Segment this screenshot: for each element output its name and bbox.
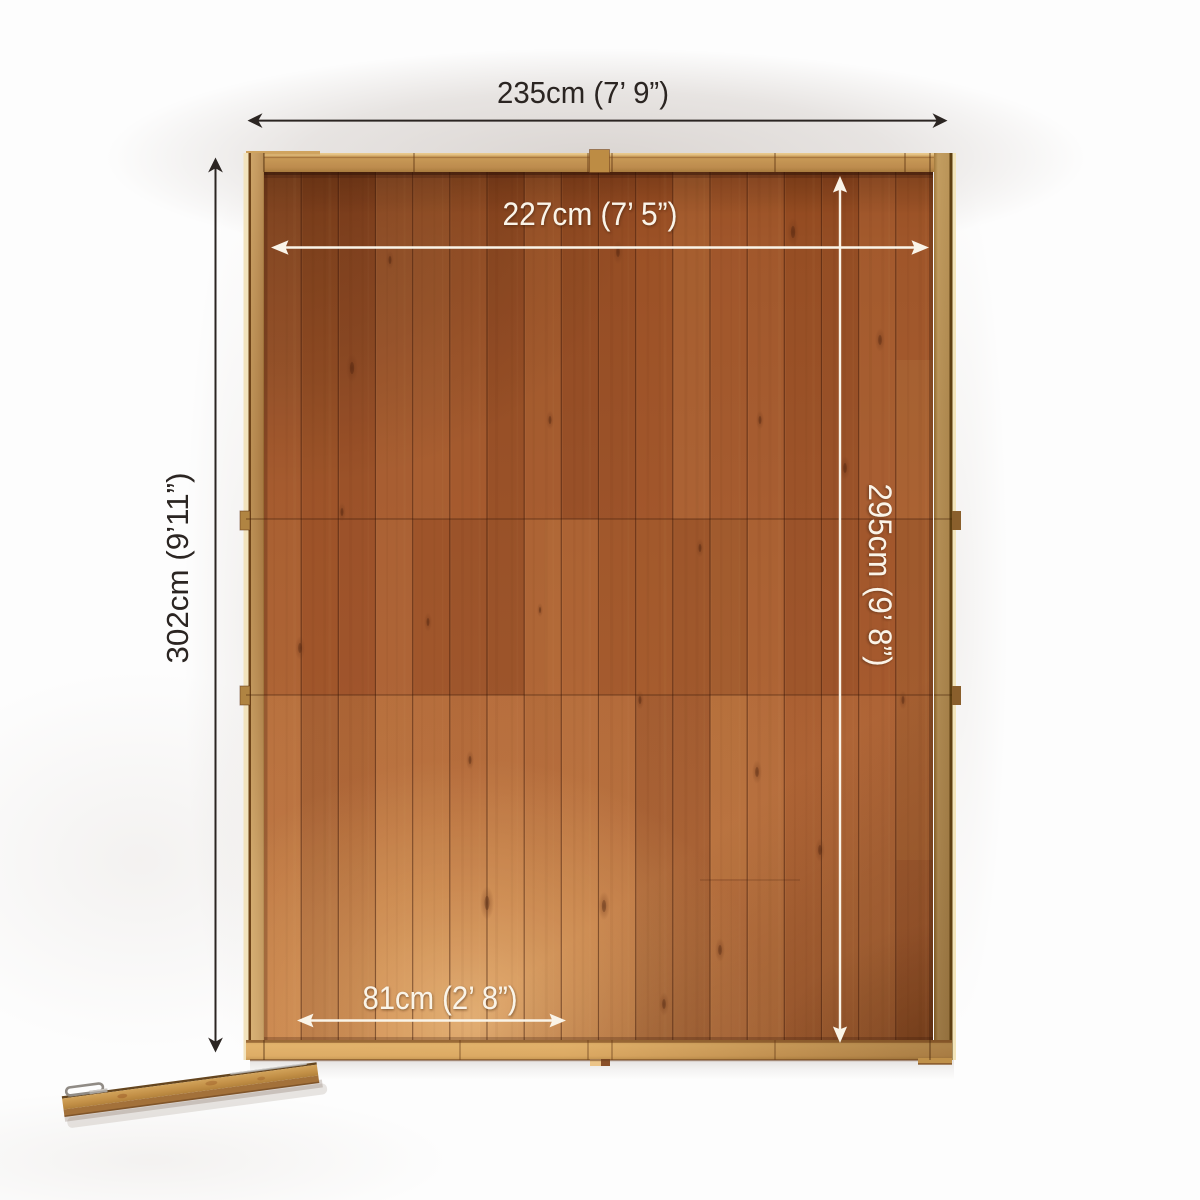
svg-text:302cm (9’11”): 302cm (9’11”) bbox=[160, 473, 195, 664]
svg-text:295cm (9’ 8”): 295cm (9’ 8”) bbox=[862, 484, 898, 667]
svg-text:81cm (2’ 8”): 81cm (2’ 8”) bbox=[363, 980, 518, 1016]
svg-text:227cm (7’ 5”): 227cm (7’ 5”) bbox=[503, 196, 678, 232]
svg-text:235cm (7’ 9”): 235cm (7’ 9”) bbox=[497, 75, 669, 110]
